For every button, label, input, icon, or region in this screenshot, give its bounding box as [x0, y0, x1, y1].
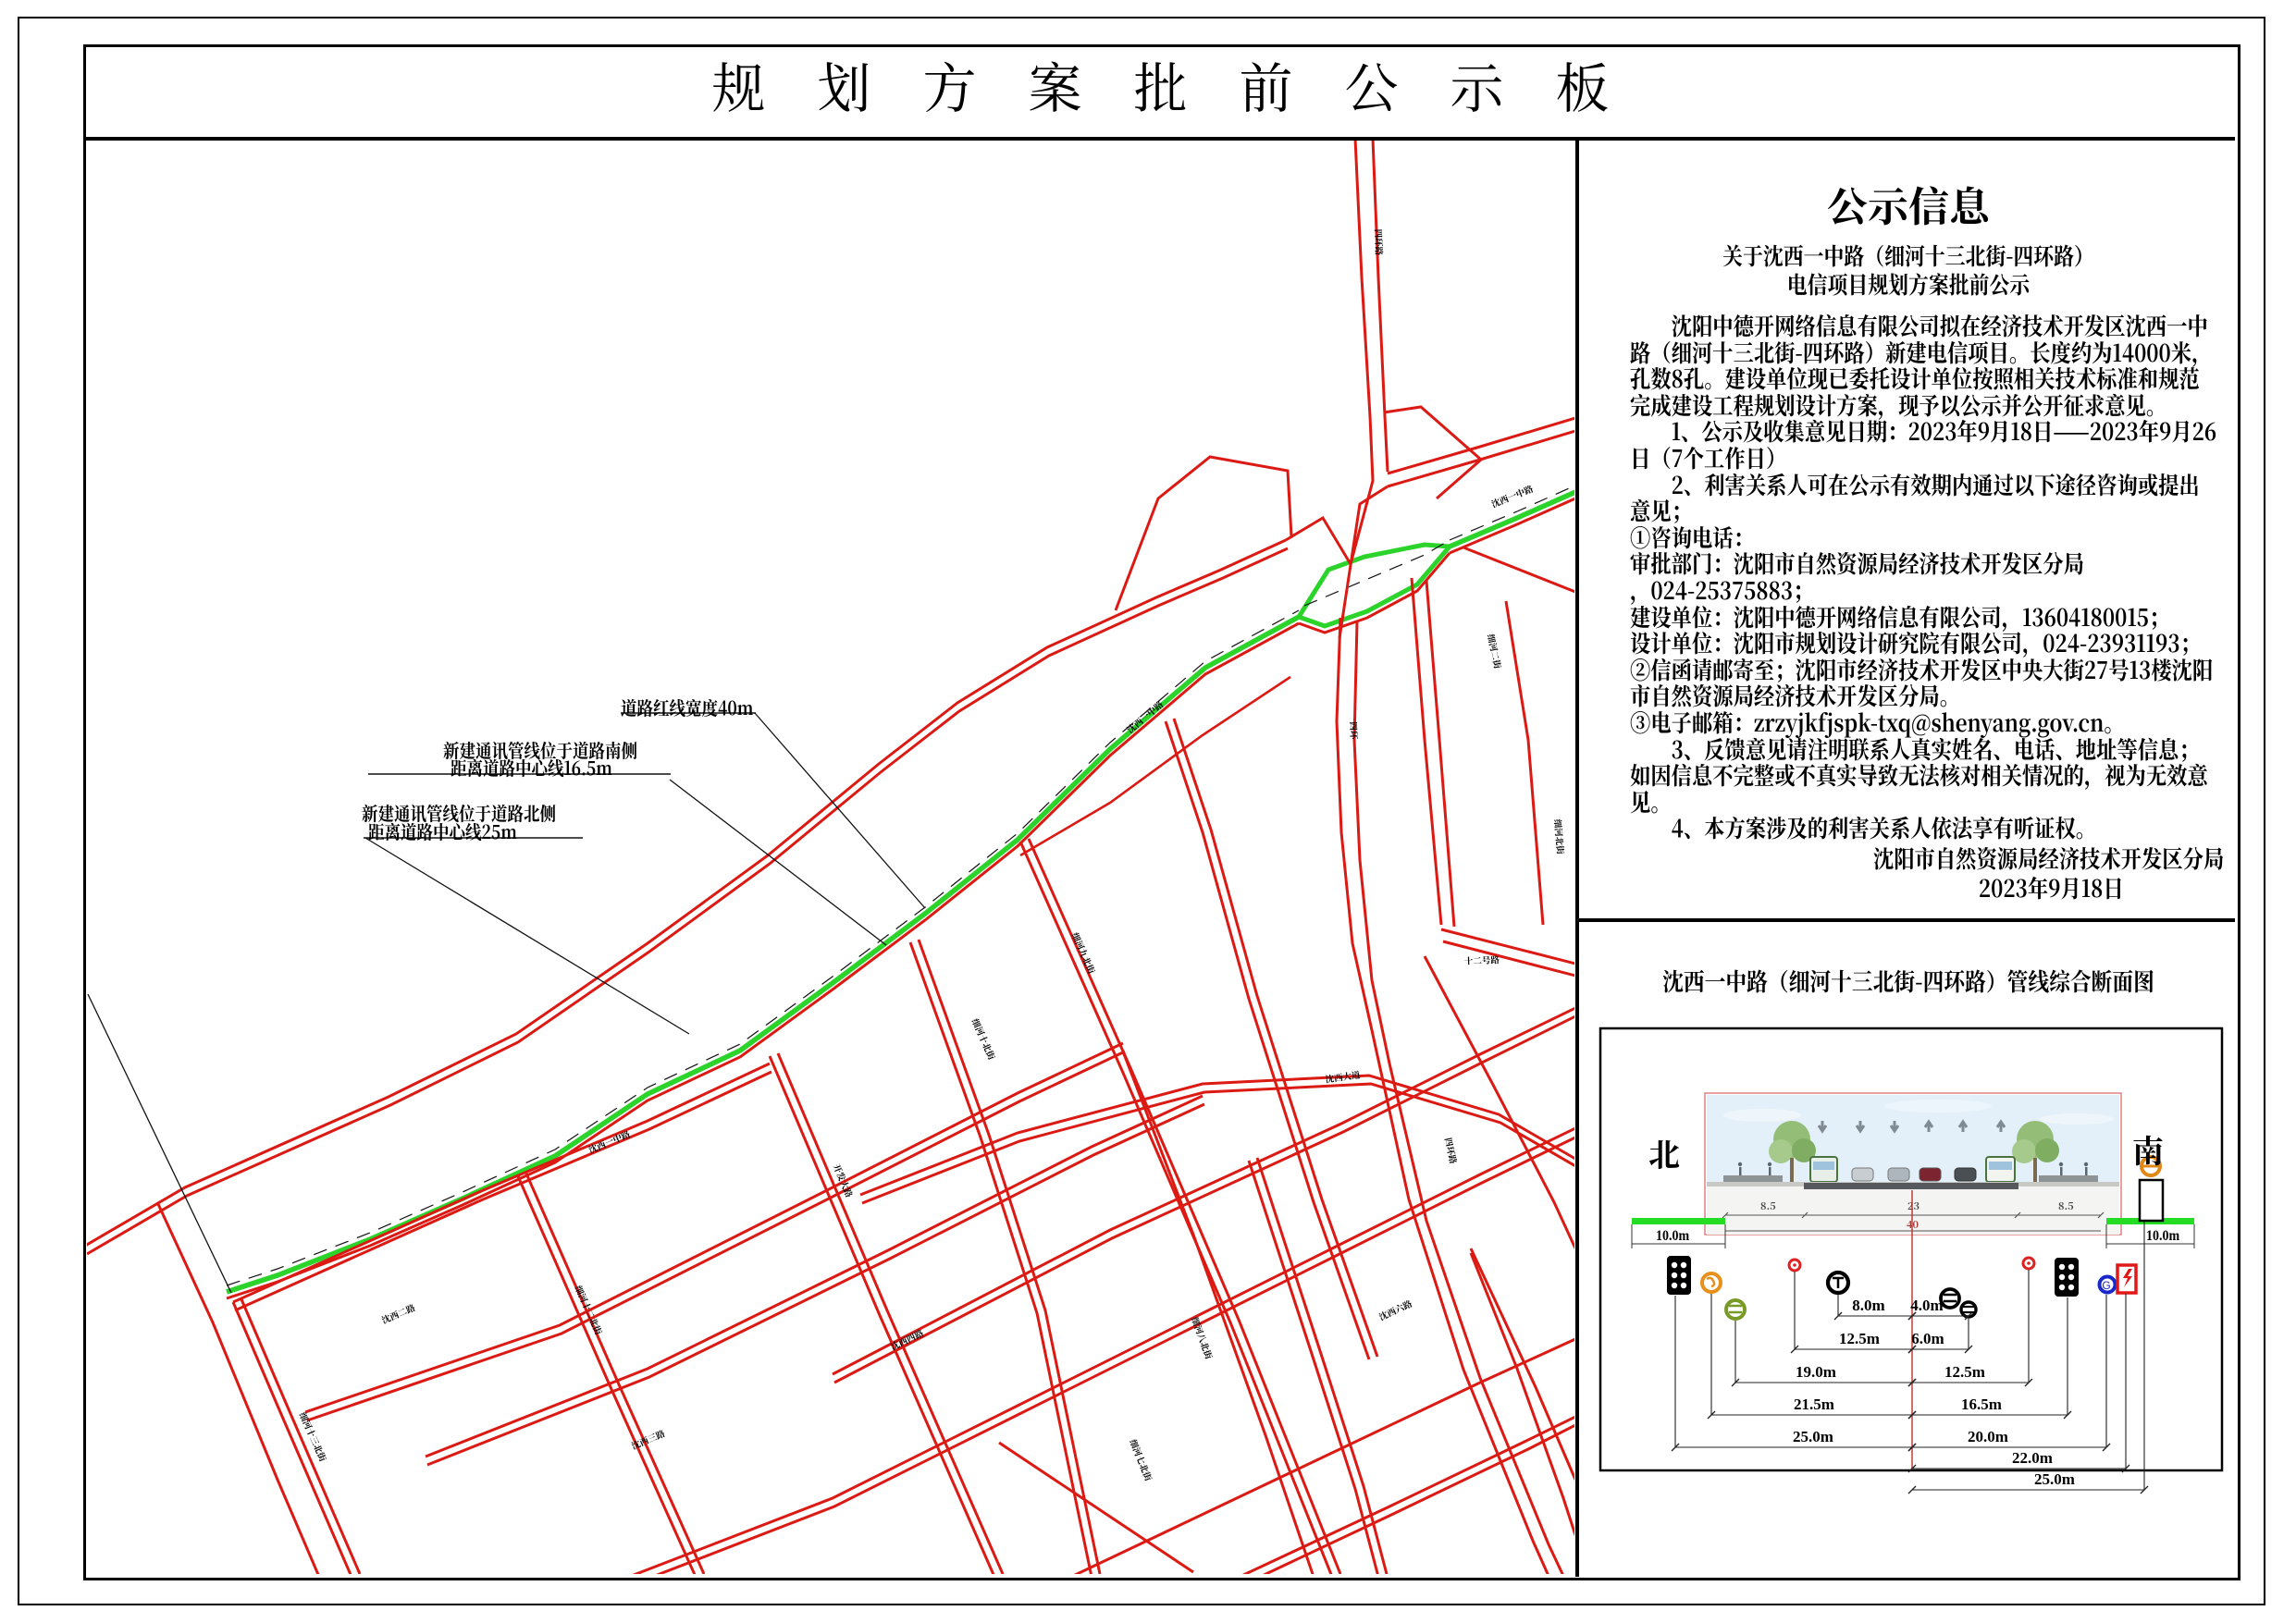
svg-text:沈西二路: 沈西二路: [379, 1300, 417, 1326]
svg-text:细河十北街: 细河十北街: [969, 1016, 999, 1063]
svg-text:8.5: 8.5: [2058, 1199, 2074, 1213]
svg-text:25.0m: 25.0m: [1793, 1428, 1833, 1445]
svg-text:4.0m: 4.0m: [1910, 1297, 1943, 1314]
svg-text:16.5m: 16.5m: [1961, 1396, 2002, 1413]
svg-text:沈西四路: 沈西四路: [888, 1326, 926, 1353]
svg-text:细河北街: 细河北街: [1551, 818, 1567, 855]
svg-text:细河八北街: 细河八北街: [1189, 1315, 1216, 1361]
svg-text:细河七北街: 细河七北街: [1127, 1437, 1155, 1483]
svg-text:25.0m: 25.0m: [2034, 1470, 2075, 1488]
svg-text:G: G: [2102, 1279, 2110, 1292]
svg-text:23: 23: [1907, 1199, 1920, 1213]
svg-text:沈西一中路: 沈西一中路: [1124, 697, 1167, 736]
svg-text:20.0m: 20.0m: [1968, 1428, 2008, 1445]
svg-text:沈西大道: 沈西大道: [1325, 1067, 1362, 1085]
svg-text:四环: 四环: [1348, 721, 1362, 741]
svg-text:22.0m: 22.0m: [2012, 1449, 2053, 1467]
svg-text:十二号路: 十二号路: [1464, 953, 1500, 966]
svg-text:19.0m: 19.0m: [1796, 1363, 1836, 1381]
svg-text:四环路: 四环路: [1442, 1137, 1461, 1165]
svg-text:四环路: 四环路: [1373, 228, 1387, 255]
svg-text:8.5: 8.5: [1760, 1199, 1776, 1213]
svg-text:6.0m: 6.0m: [1911, 1330, 1944, 1347]
svg-text:沈西一中路: 沈西一中路: [1489, 482, 1536, 510]
svg-text:细河九北街: 细河九北街: [1069, 930, 1099, 977]
svg-text:细河二街: 细河二街: [1485, 633, 1505, 670]
svg-text:21.5m: 21.5m: [1794, 1396, 1834, 1413]
svg-text:12.5m: 12.5m: [1944, 1363, 1985, 1381]
svg-text:8.0m: 8.0m: [1852, 1297, 1884, 1314]
svg-text:开发大路: 开发大路: [831, 1162, 857, 1199]
svg-text:沈西六路: 沈西六路: [1376, 1297, 1414, 1323]
svg-text:12.5m: 12.5m: [1839, 1330, 1880, 1347]
